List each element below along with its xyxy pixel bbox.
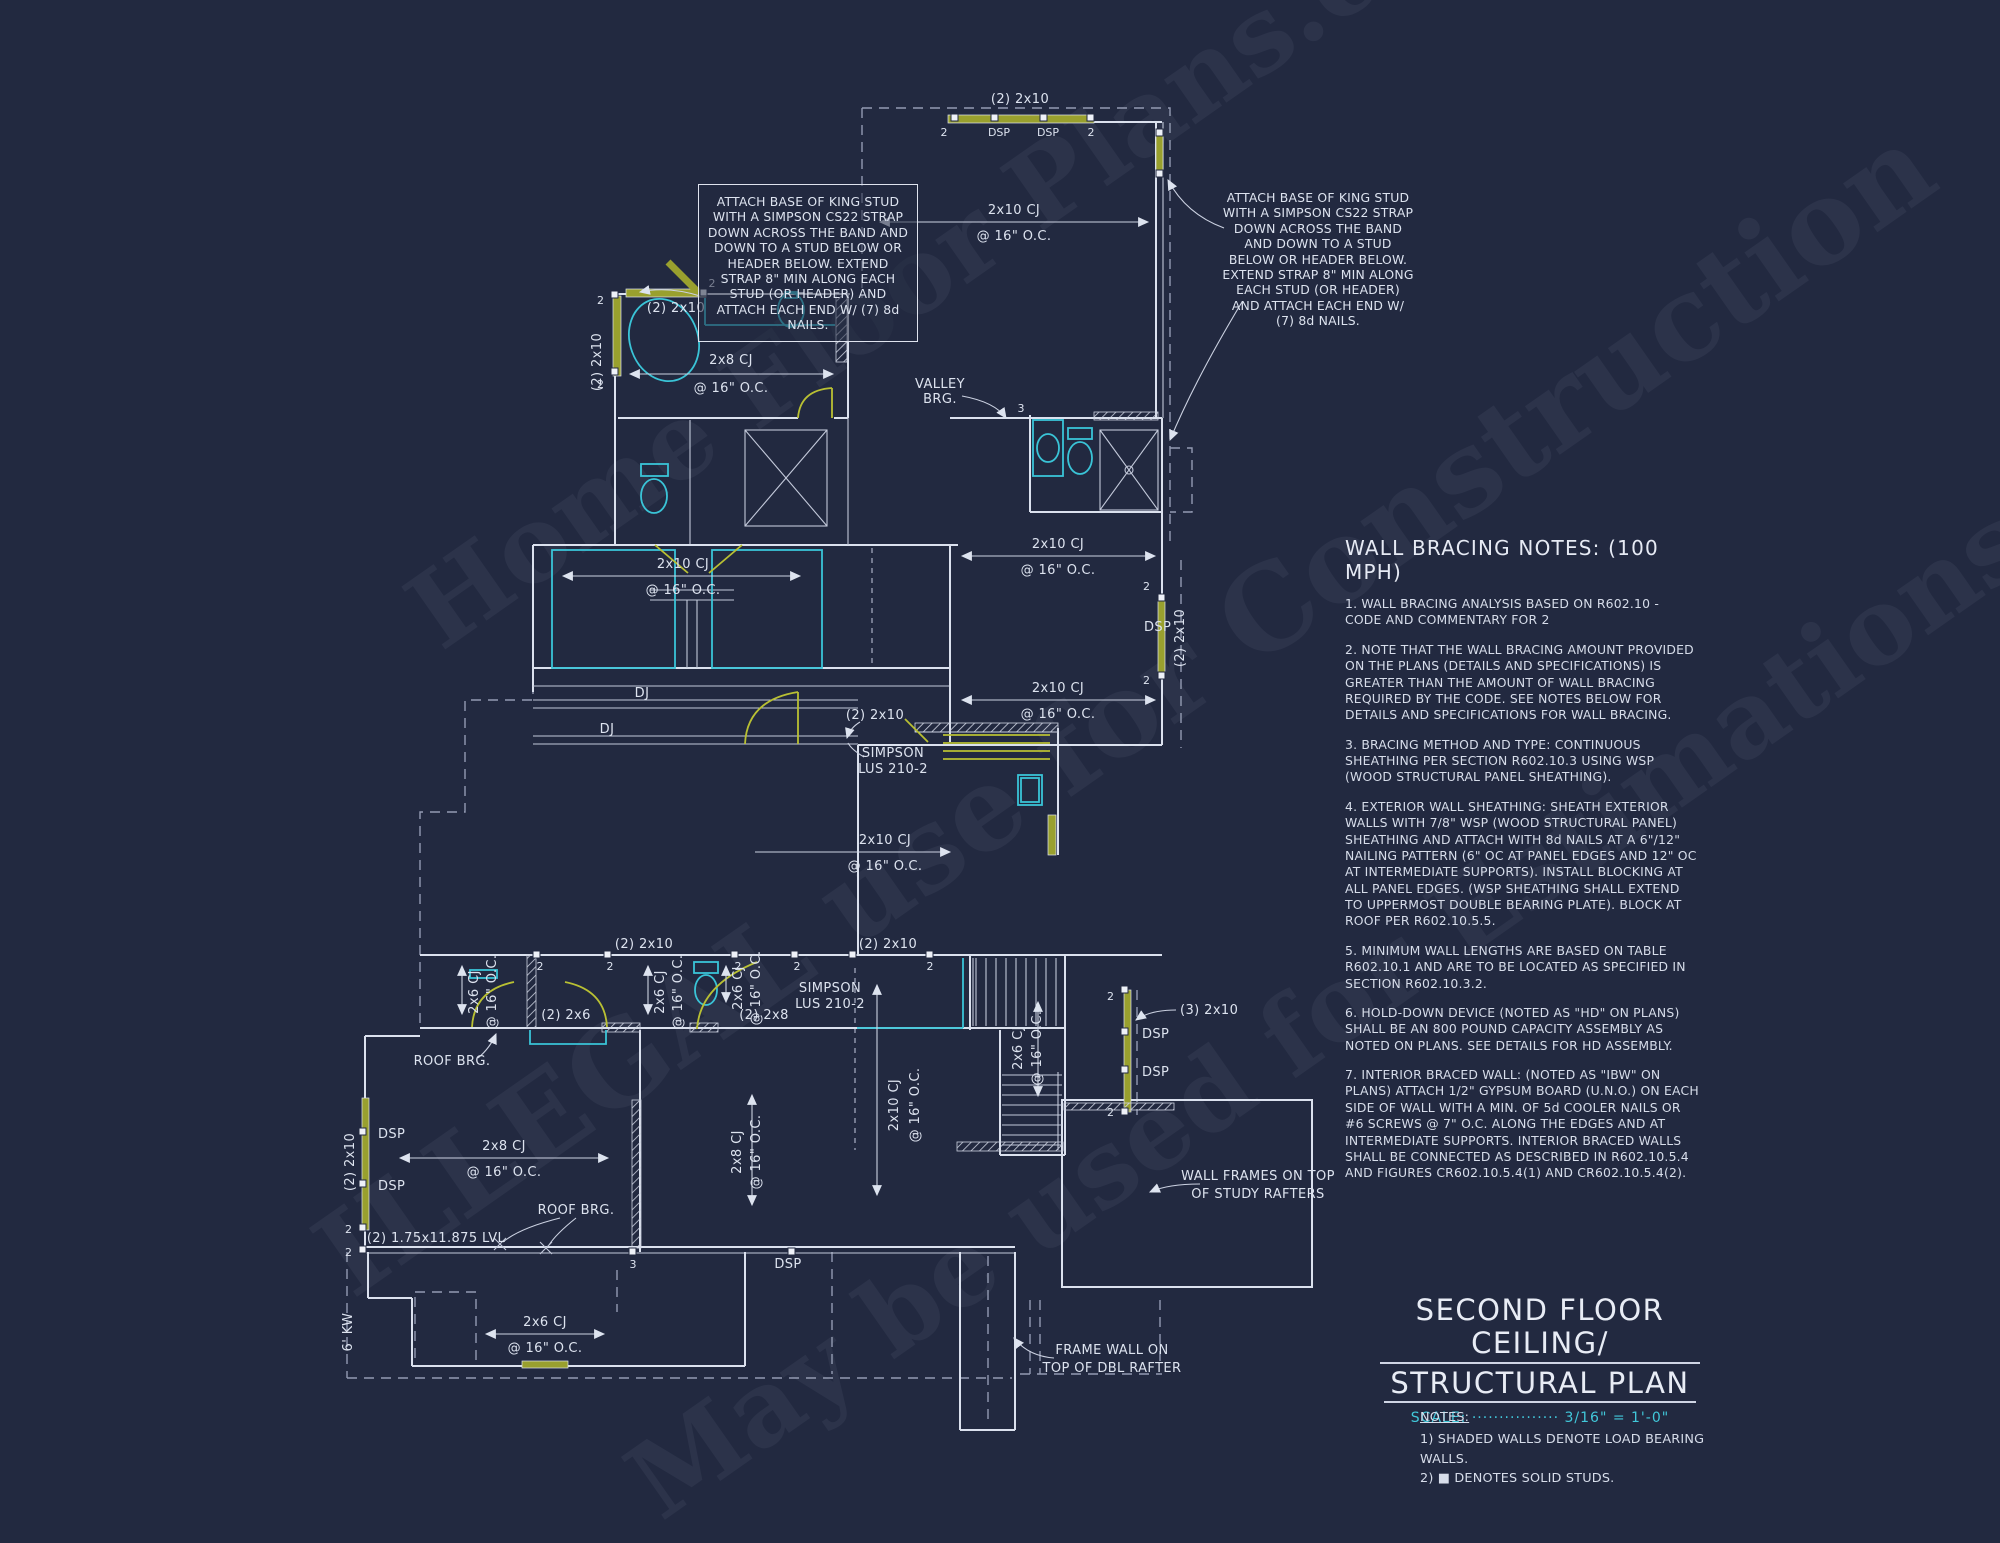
wall-bracing-notes: WALL BRACING NOTES: (100 MPH) 1. WALL BR…: [1345, 536, 1699, 1195]
marker-2: 2: [941, 126, 948, 139]
label-2-2x10: (2) 2x10: [846, 708, 904, 723]
dim-2x10-cj: 2x10 CJ: [657, 557, 709, 572]
dim-2x6-cj: 2x6 CJ: [523, 1315, 567, 1330]
label-simpson: LUS 210-2: [858, 762, 928, 777]
label-roof-brg: ROOF BRG.: [538, 1203, 615, 1218]
general-notes-title: NOTES:: [1420, 1408, 1740, 1428]
label-2-2x10-vert: (2) 2x10: [1173, 609, 1188, 667]
hatched-walls: [527, 294, 1174, 1248]
label-valley-brg: BRG.: [923, 392, 957, 407]
label-frame-wall: TOP OF DBL RAFTER: [1042, 1361, 1182, 1376]
label-dsp: DSP: [378, 1179, 405, 1194]
wall-bracing-note-2: 2. NOTE THAT THE WALL BRACING AMOUNT PRO…: [1345, 642, 1699, 724]
bedroom-ceiling-outline-2: [712, 550, 822, 668]
marker-2: 2: [345, 1223, 352, 1236]
wall-bracing-note-6: 6. HOLD-DOWN DEVICE (NOTED AS "HD" ON PL…: [1345, 1005, 1699, 1054]
label-dsp: DSP: [1142, 1065, 1169, 1080]
dim-oc: @ 16" O.C.: [1021, 707, 1096, 722]
marker-2: 2: [1107, 1106, 1114, 1119]
dim-oc: @ 16" O.C.: [1021, 563, 1096, 578]
label-valley-brg: VALLEY: [915, 377, 965, 392]
king-stud-annotation-right: ATTACH BASE OF KING STUD WITH A SIMPSON …: [1222, 190, 1414, 328]
marker-2: 2: [607, 960, 614, 973]
dim-oc: @ 16" O.C.: [977, 229, 1052, 244]
dim-oc-vert: @ 16" O.C.: [671, 955, 686, 1030]
wall-bracing-note-4: 4. EXTERIOR WALL SHEATHING: SHEATH EXTER…: [1345, 799, 1699, 930]
label-simpson: LUS 210-2: [795, 997, 865, 1012]
general-note-2: 2) ■ DENOTES SOLID STUDS.: [1420, 1469, 1740, 1489]
marker-2: 2: [794, 960, 801, 973]
sheet-title-line-1: SECOND FLOOR CEILING/: [1380, 1294, 1700, 1364]
label-wall-frames: OF STUDY RAFTERS: [1191, 1187, 1324, 1202]
dim-2x10-cj: 2x10 CJ: [988, 203, 1040, 218]
marker-2: 2: [597, 294, 604, 307]
label-2-2x10-vert: (2) 2x10: [343, 1133, 358, 1191]
dim-oc: @ 16" O.C.: [508, 1341, 583, 1356]
dim-oc-vert: @ 16" O.C.: [749, 1115, 764, 1190]
label-2-2x10: (2) 2x10: [859, 937, 917, 952]
floor-plan-drawing: (2) 2x10 2 DSP DSP 2 2x10 CJ @ 16" O.C. …: [0, 0, 2000, 1500]
marker-2: 2: [537, 960, 544, 973]
label-frame-wall: FRAME WALL ON: [1055, 1343, 1168, 1358]
label-2-2x6: (2) 2x6: [541, 1008, 591, 1023]
marker-2: 2: [1088, 126, 1095, 139]
label-dj: DJ: [600, 722, 615, 737]
label-dj: DJ: [635, 686, 650, 701]
dim-2x6-cj-vert: 2x6 CJ: [731, 966, 746, 1010]
toilet-icon-2: [1068, 442, 1092, 474]
label-2-2x10-top: (2) 2x10: [991, 92, 1049, 107]
label-roof-brg: ROOF BRG.: [414, 1054, 491, 1069]
title-block: SECOND FLOOR CEILING/ STRUCTURAL PLAN SC…: [1380, 1294, 1700, 1426]
label-2-2x10: (2) 2x10: [615, 937, 673, 952]
marker-3: 3: [630, 1258, 637, 1271]
king-stud-annotation-left: ATTACH BASE OF KING STUD WITH A SIMPSON …: [698, 184, 918, 342]
dim-2x10-cj: 2x10 CJ: [1032, 537, 1084, 552]
general-note-1: 1) SHADED WALLS DENOTE LOAD BEARING WALL…: [1420, 1430, 1740, 1470]
general-notes: NOTES: 1) SHADED WALLS DENOTE LOAD BEARI…: [1420, 1408, 1740, 1489]
marker-2: 2: [345, 1246, 352, 1259]
marker-2: 2: [1143, 580, 1150, 593]
label-dsp: DSP: [1142, 1027, 1169, 1042]
label-dsp: DSP: [1144, 620, 1171, 635]
dim-oc: @ 16" O.C.: [694, 381, 769, 396]
label-simpson: SIMPSON: [799, 981, 861, 996]
label-dsp: DSP: [988, 126, 1010, 139]
dim-2x6-cj-vert: 2x6 CJ: [467, 970, 482, 1014]
dim-oc: @ 16" O.C.: [646, 583, 721, 598]
label-simpson: SIMPSON: [862, 746, 924, 761]
label-knee-wall: 6' KW: [341, 1313, 356, 1352]
dim-2x6-cj-vert: 2x6 CJ: [653, 970, 668, 1014]
wall-bracing-note-1: 1. WALL BRACING ANALYSIS BASED ON R602.1…: [1345, 596, 1699, 629]
dim-2x8-cj: 2x8 CJ: [482, 1139, 526, 1154]
marker-2: 2: [1143, 674, 1150, 687]
dim-oc: @ 16" O.C.: [848, 859, 923, 874]
wall-bracing-note-7: 7. INTERIOR BRACED WALL: (NOTED AS "IBW"…: [1345, 1067, 1699, 1182]
dim-2x10-cj: 2x10 CJ: [859, 833, 911, 848]
sheet-title-line-2: STRUCTURAL PLAN: [1384, 1367, 1695, 1403]
dim-2x8-cj-vert: 2x8 CJ: [730, 1130, 745, 1174]
marker-2: 2: [927, 960, 934, 973]
label-dsp: DSP: [774, 1257, 801, 1272]
wall-bracing-note-3: 3. BRACING METHOD AND TYPE: CONTINUOUS S…: [1345, 737, 1699, 786]
toilet-icon: [641, 479, 667, 513]
wall-bracing-title: WALL BRACING NOTES: (100 MPH): [1345, 536, 1699, 584]
dim-2x10-cj-vert: 2x10 CJ: [887, 1079, 902, 1131]
label-2-2x10: (2) 2x10: [647, 301, 705, 316]
dim-oc: @ 16" O.C.: [467, 1165, 542, 1180]
label-3-2x10: (3) 2x10: [1180, 1003, 1238, 1018]
dim-oc-vert: @ 16" O.C.: [485, 955, 500, 1030]
dim-2x6-cj-vert: 2x6 CJ: [1011, 1026, 1026, 1070]
label-2-2x8: (2) 2x8: [739, 1008, 789, 1023]
marker-3: 3: [1018, 402, 1025, 415]
label-dsp: DSP: [1037, 126, 1059, 139]
sink-icon-2: [1037, 434, 1059, 462]
plumbing-fixtures: [470, 289, 1092, 1044]
dim-2x10-cj: 2x10 CJ: [1032, 681, 1084, 696]
label-dsp: DSP: [378, 1127, 405, 1142]
label-lvl-beam: (2) 1.75x11.875 LVL: [367, 1231, 506, 1246]
marker-2: 2: [1107, 990, 1114, 1003]
blueprint-page: { "watermark": { "line1": "Home Floor Pl…: [0, 0, 2000, 1500]
dim-oc-vert: @ 16" O.C.: [1030, 1011, 1045, 1086]
dim-oc-vert: @ 16" O.C.: [908, 1068, 923, 1143]
wall-bracing-note-5: 5. MINIMUM WALL LENGTHS ARE BASED ON TAB…: [1345, 943, 1699, 992]
marker-2: 2: [597, 378, 604, 391]
label-wall-frames: WALL FRAMES ON TOP: [1181, 1169, 1335, 1184]
dim-2x8-cj: 2x8 CJ: [709, 353, 753, 368]
